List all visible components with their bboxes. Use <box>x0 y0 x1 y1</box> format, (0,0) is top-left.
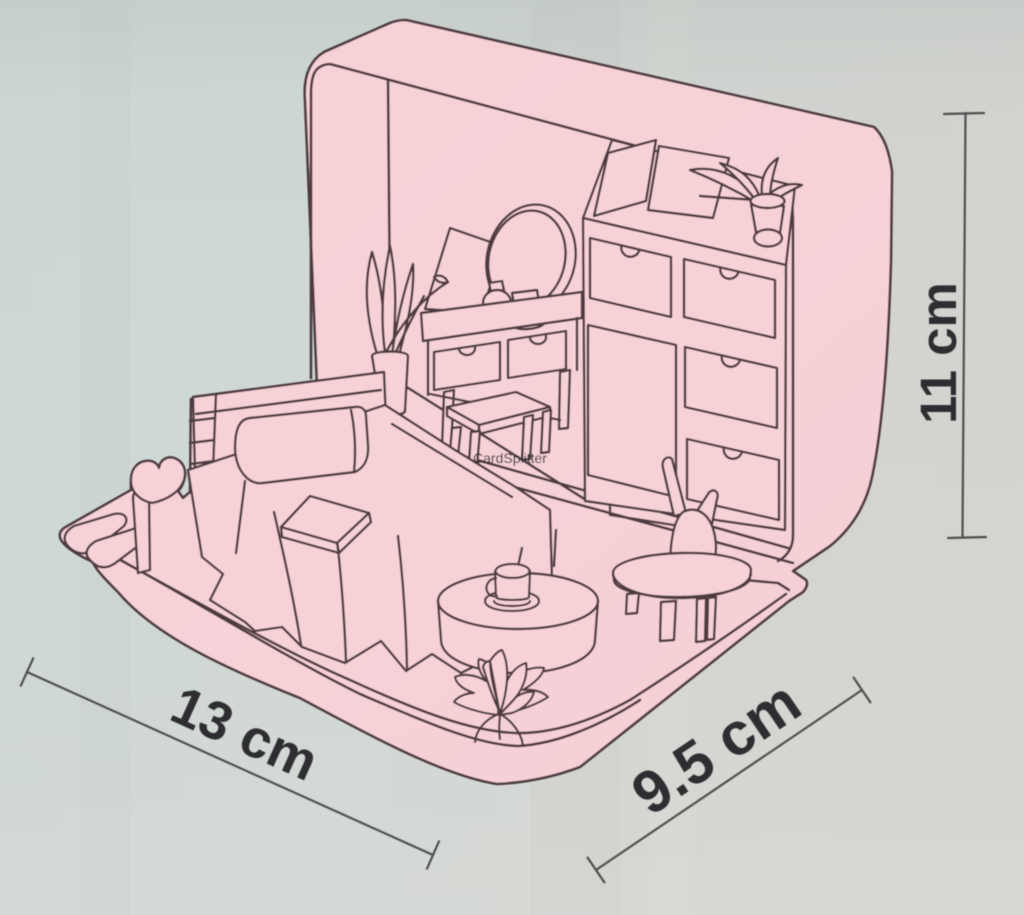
svg-text:11 cm: 11 cm <box>910 282 967 424</box>
svg-text:CardSplitter: CardSplitter <box>473 450 547 466</box>
